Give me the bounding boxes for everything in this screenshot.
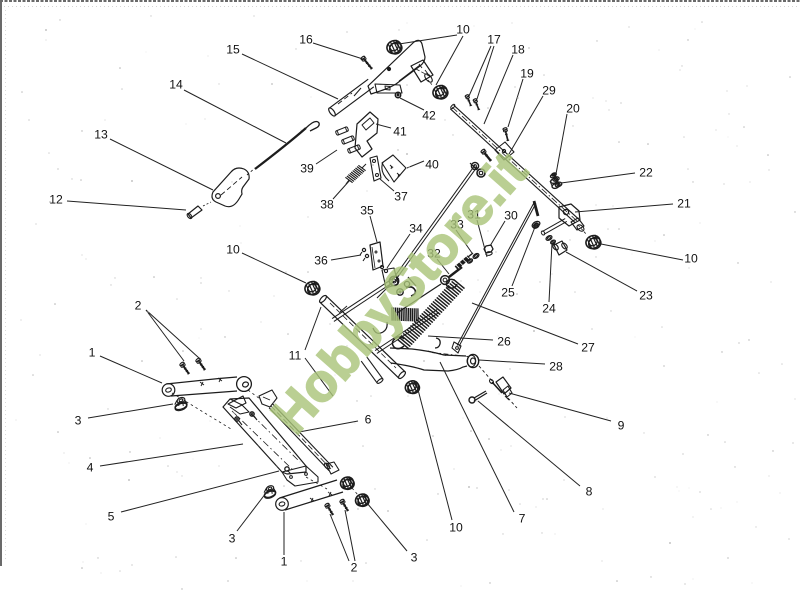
svg-text:13: 13: [94, 128, 108, 142]
svg-text:10: 10: [684, 252, 698, 266]
svg-text:14: 14: [169, 78, 183, 92]
svg-text:3: 3: [75, 414, 82, 428]
svg-text:16: 16: [299, 33, 313, 47]
svg-text:1: 1: [89, 346, 96, 360]
svg-text:35: 35: [360, 204, 374, 218]
svg-text:3: 3: [411, 551, 418, 565]
svg-text:10: 10: [449, 521, 463, 535]
svg-text:41: 41: [393, 125, 407, 139]
svg-text:15: 15: [226, 43, 240, 57]
svg-text:7: 7: [519, 512, 526, 526]
svg-text:2: 2: [351, 561, 358, 575]
svg-text:29: 29: [542, 84, 556, 98]
svg-text:26: 26: [497, 335, 511, 349]
svg-text:3: 3: [229, 532, 236, 546]
svg-text:20: 20: [566, 102, 580, 116]
svg-text:19: 19: [520, 67, 534, 81]
svg-text:22: 22: [639, 166, 653, 180]
svg-text:5: 5: [108, 510, 115, 524]
svg-text:1: 1: [281, 555, 288, 569]
svg-text:36: 36: [314, 254, 328, 268]
svg-text:40: 40: [425, 158, 439, 172]
svg-text:21: 21: [677, 197, 691, 211]
svg-text:24: 24: [542, 302, 556, 316]
svg-text:9: 9: [618, 419, 625, 433]
svg-text:39: 39: [300, 162, 314, 176]
svg-text:25: 25: [501, 286, 515, 300]
svg-text:6: 6: [365, 413, 372, 427]
svg-text:10: 10: [456, 23, 470, 37]
svg-text:23: 23: [639, 289, 653, 303]
svg-text:27: 27: [581, 341, 595, 355]
svg-text:38: 38: [320, 198, 334, 212]
svg-text:17: 17: [487, 33, 501, 47]
svg-text:42: 42: [422, 109, 436, 123]
svg-text:12: 12: [49, 193, 63, 207]
svg-text:37: 37: [394, 190, 408, 204]
svg-text:2: 2: [135, 299, 142, 313]
svg-text:28: 28: [549, 360, 563, 374]
svg-text:10: 10: [226, 243, 240, 257]
svg-text:8: 8: [586, 485, 593, 499]
svg-text:18: 18: [511, 43, 525, 57]
svg-text:4: 4: [87, 461, 94, 475]
